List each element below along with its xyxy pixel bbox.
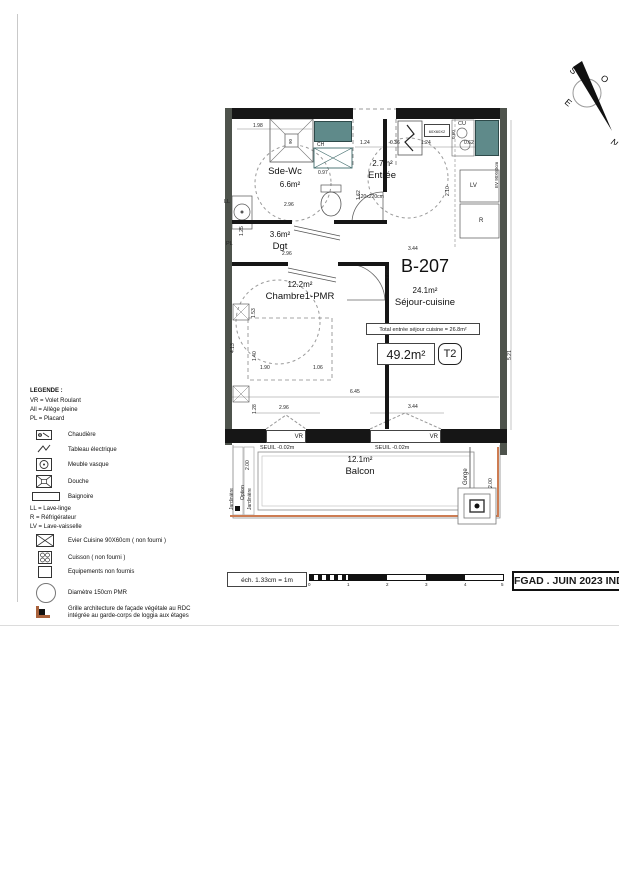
washbasin-legend-icon [36,458,52,471]
wall-under-sdewc-b [334,220,387,224]
window-vr-1: VR [266,430,306,443]
dim-sdewc-h: 1.62 [357,190,362,200]
wall-bottom-b [306,429,370,443]
legend-item: Diamètre 150cm PMR [68,590,127,597]
dim-bed-w: 1.90 [260,366,270,371]
label-lv: LV [470,183,477,189]
legend-item: Grille architecture de façade végétale a… [68,606,213,620]
dim-ch140: 1.40 [253,351,258,361]
north-needle [573,61,612,131]
wall-right [500,108,507,455]
legend-item: Cuisson ( non fourni ) [68,555,125,562]
legend-item: R = Réfrigérateur [30,515,210,522]
window-vr-1-label: VR [295,434,303,440]
room-dgt-area: 3.6m² [258,231,302,240]
legend-abbr-2: LL = Lave-linge R = Réfrigérateur LV = L… [30,506,210,531]
compass-e: E [563,97,574,109]
compass-n: N [609,137,619,145]
wall-under-dgt-a [232,262,288,266]
scale-label-box: éch. 1.33cm = 1m [227,572,307,587]
hob-size-box: 60X60X2 [424,124,450,137]
drain-detail [458,488,496,524]
dim-k062: 0.62 [464,141,474,146]
room-sdewc-area: 6.6m² [260,181,320,190]
room-balcon-name: Balcon [330,467,390,477]
room-entree-name: Entrée [352,171,412,181]
scale-label: éch. 1.33cm = 1m [241,577,293,584]
scale-tick-2: 2 [386,583,389,588]
dim-win2: 3.44 [408,405,418,410]
electric-panel-icon [398,121,422,155]
label-jardiniere-2: Jardinière [248,488,253,510]
legend: LEGENDE : VR = Volet Roulant All = Allèg… [30,388,210,423]
legend-item: All = Allège pleine [30,407,210,414]
label-pl: PL [226,242,233,248]
scale-seg-2 [386,575,425,580]
equipment-legend-icon [38,566,52,578]
boiler-legend-icon [36,430,52,440]
scale-tick-5: 5 [501,583,504,588]
room-sejour-area: 24.1m² [393,287,457,296]
title-block: FGAD . JUIN 2023 IND [512,571,619,591]
unit-id: B-207 [385,256,465,277]
total-area-box: 49.2m² [377,343,435,365]
dim-cu-d: 0.60 [452,130,457,139]
washbasin-icon [232,196,252,229]
total-note-box: Total entrée séjour cuisine = 26.8m² [366,323,480,335]
dim-ch128: 1.28 [253,404,258,414]
room-sejour-name: Séjour-cuisine [378,298,472,308]
shower-legend-icon [36,475,52,488]
sink-legend-icon [36,534,54,547]
dim-sejour-top: 3.44 [408,247,418,252]
scale-tick-1: 1 [347,583,350,588]
facade-grille-legend-icon [34,606,50,620]
dim-k036: 0.36 [390,141,400,146]
dim-dgt-w: 2.96 [282,252,292,257]
total-area: 49.2m² [387,348,426,362]
boiler-cabinet [314,121,352,142]
electric-panel-legend-icon [36,444,52,454]
legend-item: LV = Lave-vaisselle [30,524,210,531]
kitchen-sink-cabinet [475,120,499,156]
legend-item: Evier Cuisine 90X60cm ( non fourni ) [68,538,166,545]
hob-size-label: 60X60X2 [429,129,445,134]
left-wall-openings [233,304,249,402]
legend-item: LL = Lave-linge [30,506,210,513]
label-cu: CU [458,122,466,128]
scale-seg-1 [348,575,386,580]
bathtub-legend-icon [32,492,60,501]
unit-type-box: T2 [438,343,462,365]
compass-o: O [599,73,611,85]
room-entree-area: 2.7m² [355,160,410,169]
room-balcon-area: 12.1m² [330,456,390,465]
dim-wc-w: 0.97 [318,171,328,176]
dim-balc-r: 2.00 [489,478,494,488]
dim-ch153: 1.53 [252,308,257,318]
wall-top-right [396,108,507,119]
dim-sdewc-w: 2.96 [284,203,294,208]
total-note: Total entrée séjour cuisine = 26.8m² [379,327,466,333]
seuil-2: SEUIL -0.02m [375,446,409,452]
north-arrow: S O E N [556,55,619,145]
label-ch: CH [317,143,324,148]
dim-inner-w: 6.45 [350,390,360,395]
scale-tick-3: 3 [425,583,428,588]
wall-bottom-a [225,429,266,443]
dim-balc-l: 2.00 [246,460,251,470]
scale-seg-0 [310,575,348,580]
hob-legend-icon [38,551,52,564]
label-option: Option [241,485,246,500]
dim-dgt-h: 1.25 [240,226,245,236]
legend-item: Douche [68,479,89,486]
wall-left [225,108,232,445]
dim-bed-r: 1.06 [313,366,323,371]
dim-shower-90: 90 [289,139,294,144]
dim-sejour-h: 7.88 [386,269,391,279]
legend-item: Tableau électrique [68,447,117,454]
legend-item: VR = Volet Roulant [30,398,210,405]
dim-ch413: 4.13 [231,343,236,353]
scale-seg-3 [426,575,464,580]
dim-k124: 1.24 [421,141,431,146]
dim-right-h: 5.21 [508,350,513,360]
compass-s: S [568,65,579,77]
window-vr-2: VR [370,430,441,443]
pmr-legend-icon [36,583,56,603]
floor-plan-sheet: VR VR 60X60X2 Sde-Wc 6.6m² 2.7m² Entrée … [0,0,619,877]
label-r: R [479,218,483,224]
dim-win1: 2.96 [279,406,289,411]
scale-tick-4: 4 [464,583,467,588]
scale-seg-4 [464,575,503,580]
title-block-text: FGAD . JUIN 2023 IND [514,575,619,587]
label-gorge: Gorge [463,468,469,485]
dim-k210: 2.10 [446,186,451,196]
legend-title: LEGENDE : [30,388,210,395]
room-dgt-name: Dgt [258,242,302,252]
legend-item: Meuble vasque [68,462,109,469]
seuil-1: SEUIL -0.02m [260,446,294,452]
room-chambre-area: 12.2m² [268,281,332,290]
wall-under-sdewc-a [232,220,292,224]
label-ev: EV 90X60cm [495,162,500,188]
scale-ruler [309,574,504,581]
room-sdewc-name: Sde-Wc [255,167,315,177]
unit-type: T2 [444,348,457,360]
scale-tick-0: 0 [308,583,311,588]
room-chambre-name: Chambre1-PMR [240,292,360,302]
legend-item: Chaudière [68,432,96,439]
wall-under-dgt-b [338,262,387,266]
wall-bottom-c [441,429,507,443]
dim-entree-top: 1.24 [360,141,370,146]
wall-top-left [225,108,353,119]
toilet-icon [321,185,341,216]
label-ll: LL [224,200,230,206]
legend-item: Equipements non fournis [68,569,134,576]
legend-item: Baignoire [68,494,93,501]
boiler-icon [314,148,352,168]
window-vr-2-label: VR [430,434,438,440]
dim-shower-top: 1.98 [253,124,263,129]
legend-item: PL = Placard [30,416,210,423]
label-jardiniere-1: Jardinière [230,488,235,510]
